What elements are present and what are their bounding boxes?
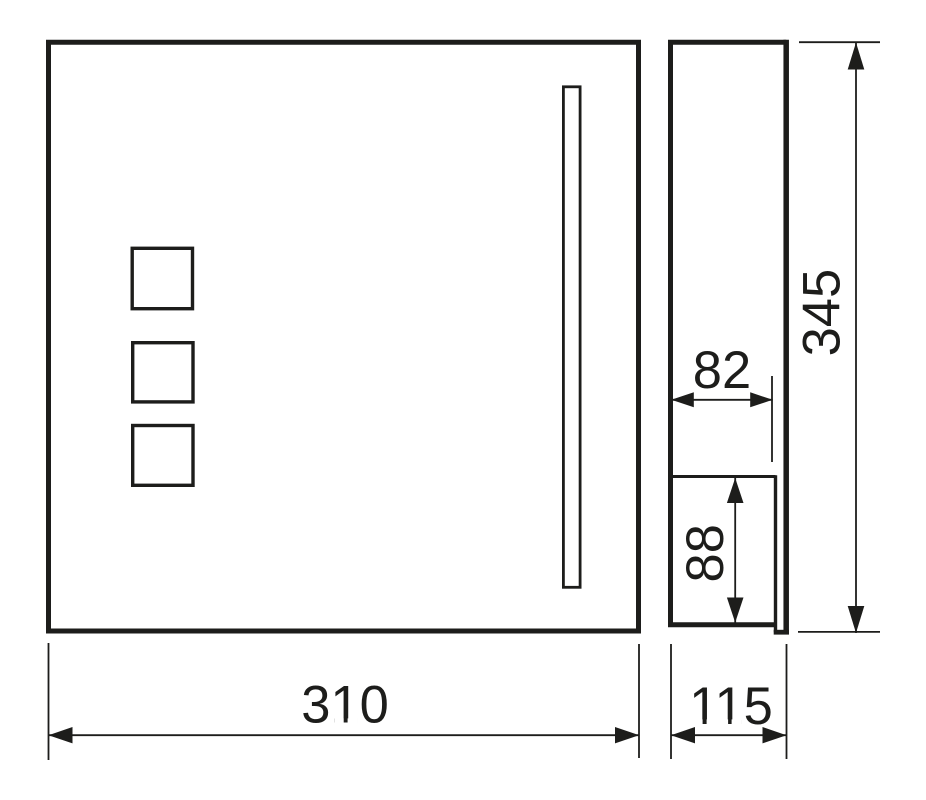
svg-text:82: 82 <box>693 341 751 400</box>
svg-text:310: 310 <box>301 676 389 735</box>
svg-text:115: 115 <box>689 677 773 736</box>
svg-text:345: 345 <box>793 269 852 357</box>
svg-text:88: 88 <box>676 524 735 582</box>
